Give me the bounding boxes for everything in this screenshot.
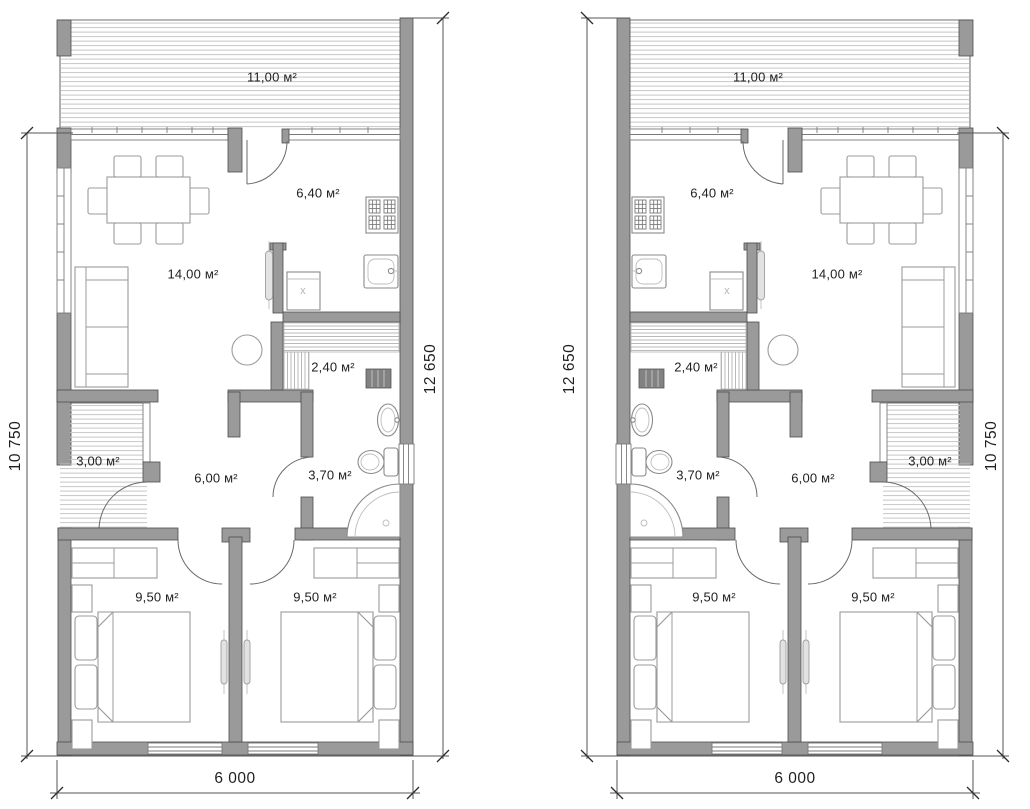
room-label-terrace-left: 11,00 м²: [247, 70, 297, 85]
room-label-bedroom2-right: 9,50 м²: [692, 590, 736, 605]
washer-label-left: x: [300, 285, 306, 297]
dim-label-10750-right-unit: 10 750: [983, 421, 1001, 471]
room-label-bath-right: 3,70 м²: [676, 468, 720, 483]
room-label-terrace-right: 11,00 м²: [733, 70, 783, 85]
room-label-bedroom2-left: 9,50 м²: [293, 590, 337, 605]
floor-plan-drawing: [0, 0, 1030, 809]
washer-label-right: x: [724, 285, 730, 297]
room-label-porch-right: 3,00 м²: [908, 454, 952, 469]
room-label-porch-left: 3,00 м²: [76, 454, 120, 469]
floor-plan-canvas: 11,00 м² 6,40 м² 14,00 м² 2,40 м² 3,00 м…: [0, 0, 1030, 809]
room-label-living-left: 14,00 м²: [167, 267, 218, 282]
room-label-bedroom1-left: 9,50 м²: [135, 590, 179, 605]
room-label-hall-left: 6,00 м²: [194, 471, 238, 486]
room-label-living-right: 14,00 м²: [811, 267, 862, 282]
dim-label-10750-left-unit: 10 750: [7, 421, 25, 471]
room-label-kitchen-right: 6,40 м²: [690, 186, 734, 201]
room-label-sauna-right: 2,40 м²: [674, 360, 718, 375]
room-label-hall-right: 6,00 м²: [791, 471, 835, 486]
dim-label-12650-right-unit: 12 650: [561, 344, 579, 394]
room-label-bedroom1-right: 9,50 м²: [851, 590, 895, 605]
dim-label-12650-left-unit: 12 650: [422, 344, 440, 394]
room-label-sauna-left: 2,40 м²: [311, 360, 355, 375]
room-label-bath-left: 3,70 м²: [308, 468, 352, 483]
room-label-kitchen-left: 6,40 м²: [296, 186, 340, 201]
dim-label-6000-right-unit: 6 000: [774, 770, 815, 788]
dim-label-6000-left-unit: 6 000: [214, 770, 255, 788]
